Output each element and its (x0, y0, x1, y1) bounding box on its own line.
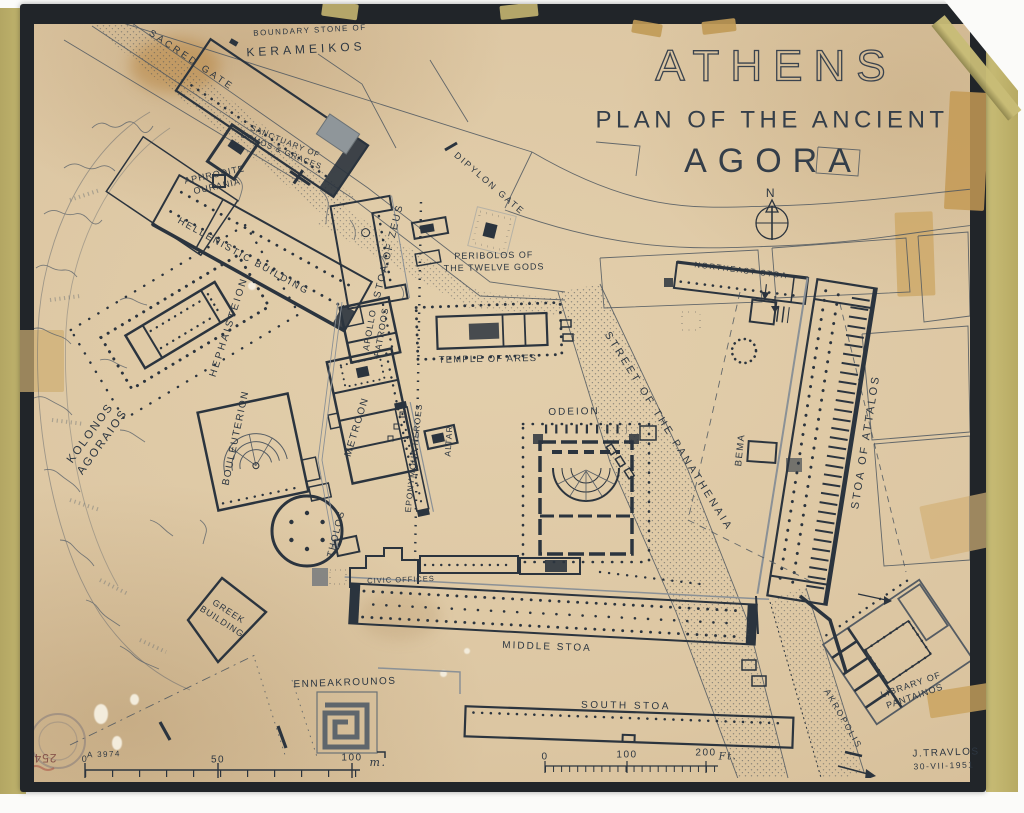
tape-patch (20, 330, 64, 392)
tape-patch (944, 91, 986, 211)
paper-damage-spot (440, 670, 447, 677)
map-photo-frame (20, 4, 986, 792)
map-paper (34, 24, 970, 782)
paper-damage-spot (464, 648, 470, 654)
tape-patch (321, 4, 359, 20)
paper-damage-spot (248, 282, 256, 290)
right-edge-tape (986, 0, 1018, 792)
paper-damage-spot (112, 736, 122, 750)
stain (130, 38, 220, 93)
paper-damage-spot (94, 704, 108, 724)
paper-damage-spot (130, 694, 139, 705)
tape-patch (499, 4, 538, 20)
tape-patch (895, 211, 936, 296)
scanned-map-photo: ATHENS PLAN OF THE ANCIENT AGORA N BOUND… (0, 0, 1024, 813)
stain (360, 590, 440, 640)
